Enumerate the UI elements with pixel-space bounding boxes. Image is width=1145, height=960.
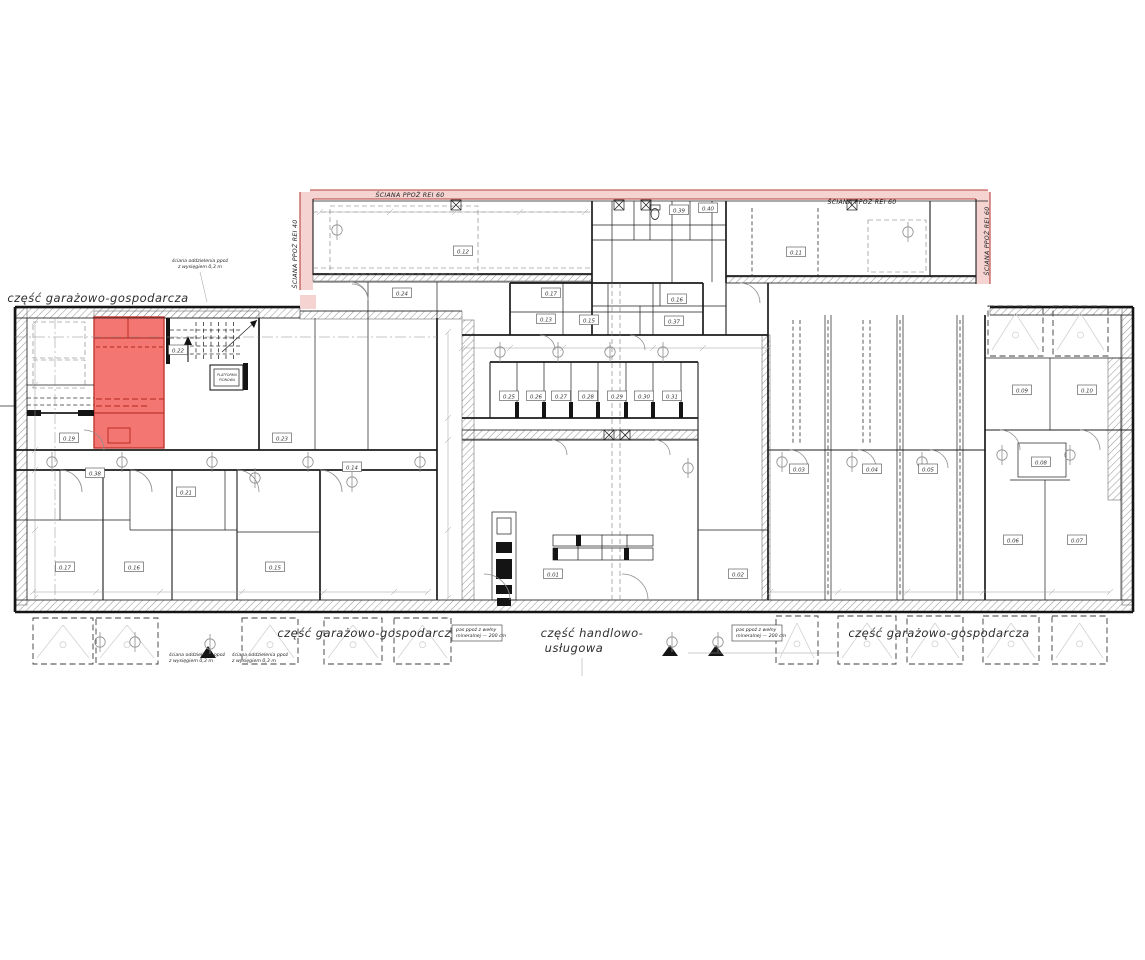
room-label-0.01: 0.01	[544, 569, 563, 579]
zone-garage-top-left-label: część garażowo-gospodarcza	[7, 291, 188, 305]
zone-garage-bottom-left-label: część garażowo-gospodarcza	[277, 626, 458, 640]
room-label-0.03: 0.03	[790, 464, 809, 474]
svg-text:0.16: 0.16	[671, 297, 684, 303]
svg-text:0.31: 0.31	[666, 394, 678, 400]
room-label-0.11: 0.11	[787, 247, 806, 257]
svg-text:0.22: 0.22	[172, 348, 185, 354]
room-label-0.13: 0.13	[537, 314, 556, 324]
svg-text:0.09: 0.09	[1016, 388, 1029, 394]
svg-text:0.15: 0.15	[269, 565, 282, 571]
room-label-0.15: 0.15	[580, 315, 599, 325]
svg-text:0.28: 0.28	[582, 394, 595, 400]
micro-labels: PLATFORMAPIONOWA	[217, 373, 237, 382]
svg-text:0.21: 0.21	[180, 490, 192, 496]
svg-text:0.07: 0.07	[1071, 538, 1084, 544]
svg-text:0.10: 0.10	[1081, 388, 1094, 394]
room-label-0.37: 0.37	[665, 316, 684, 326]
room-label-0.06: 0.06	[1004, 535, 1023, 545]
room-label-0.17: 0.17	[542, 288, 561, 298]
floorplan-drawing: część garażowo-gospodarczaczęść garażowo…	[0, 0, 1145, 960]
svg-text:0.37: 0.37	[668, 319, 681, 325]
svg-text:0.25: 0.25	[503, 394, 516, 400]
note-mineral-wool-left-line-1: pas ppoż z wełny	[455, 627, 497, 633]
svg-text:0.13: 0.13	[540, 317, 553, 323]
svg-text:0.17: 0.17	[545, 291, 558, 297]
room-label-0.30: 0.30	[635, 391, 654, 401]
room-label-0.07: 0.07	[1068, 535, 1087, 545]
note-mineral-wool-right: pas ppoż z wełnymineralnej — 200 cm	[732, 625, 787, 641]
svg-text:0.17: 0.17	[59, 565, 72, 571]
svg-text:0.11: 0.11	[790, 250, 802, 256]
svg-text:0.14: 0.14	[346, 465, 359, 471]
svg-text:0.04: 0.04	[866, 467, 879, 473]
note-separation-wall-bottom-1-line-1: ściana oddzielenia ppoż	[169, 651, 226, 658]
svg-text:0.24: 0.24	[396, 291, 409, 297]
svg-text:0.12: 0.12	[457, 249, 470, 255]
svg-text:0.06: 0.06	[1007, 538, 1020, 544]
svg-text:0.30: 0.30	[638, 394, 651, 400]
svg-text:0.03: 0.03	[793, 467, 806, 473]
platform-label-1: PLATFORMA	[217, 373, 237, 377]
room-label-0.09: 0.09	[1013, 385, 1032, 395]
note-separation-wall-top: ściana oddzielenia ppożz wysięgiem 0,3 m	[172, 257, 229, 270]
svg-text:0.39: 0.39	[673, 208, 686, 214]
room-label-0.40: 0.40	[699, 203, 718, 213]
firewall-top-right: ŚCIANA PPOŻ REI 60	[828, 197, 897, 206]
note-separation-wall-top-line-1: ściana oddzielenia ppoż	[172, 257, 229, 264]
room-label-0.14: 0.14	[343, 462, 362, 472]
note-separation-wall-bottom-2-line-2: z wysięgiem 0,3 m	[231, 658, 276, 664]
platform-label-2: PIONOWA	[219, 378, 236, 382]
room-label-0.22: 0.22	[169, 345, 188, 355]
room-label-0.27: 0.27	[552, 391, 571, 401]
svg-text:0.38: 0.38	[89, 471, 102, 477]
room-label-0.21: 0.21	[177, 487, 196, 497]
room-label-0.17: 0.17	[56, 562, 75, 572]
svg-text:0.27: 0.27	[555, 394, 568, 400]
note-separation-wall-bottom-1-line-2: z wysięgiem 0,3 m	[168, 658, 213, 664]
zone-retail-line1-label: część handlowo-	[541, 626, 644, 640]
room-label-0.12: 0.12	[454, 246, 473, 256]
svg-text:0.15: 0.15	[583, 318, 596, 324]
room-label-0.15: 0.15	[266, 562, 285, 572]
svg-text:0.40: 0.40	[702, 206, 715, 212]
svg-text:0.08: 0.08	[1035, 460, 1048, 466]
svg-text:0.29: 0.29	[611, 394, 624, 400]
zone-garage-bottom-right-label: część garażowo-gospodarcza	[848, 626, 1029, 640]
note-separation-wall-bottom-2-line-1: ściana oddzielenia ppoż	[232, 651, 289, 658]
room-label-0.39: 0.39	[670, 205, 689, 215]
floorplan-page: część garażowo-gospodarczaczęść garażowo…	[0, 0, 1145, 960]
room-label-0.38: 0.38	[86, 468, 105, 478]
room-label-0.28: 0.28	[579, 391, 598, 401]
svg-text:0.26: 0.26	[530, 394, 543, 400]
room-label-0.08: 0.08	[1032, 457, 1051, 467]
room-label-0.26: 0.26	[527, 391, 546, 401]
room-label-0.23: 0.23	[273, 433, 292, 443]
svg-text:0.02: 0.02	[732, 572, 745, 578]
svg-text:0.05: 0.05	[922, 467, 935, 473]
firewall-right-vertical: ŚCIANA PPOŻ REI 60	[982, 207, 991, 276]
room-label-0.10: 0.10	[1078, 385, 1097, 395]
firewall-left-vertical: ŚCIANA PPOŻ REI 40	[290, 220, 299, 289]
room-label-0.04: 0.04	[863, 464, 882, 474]
note-mineral-wool-right-line-2: mineralnej — 200 cm	[736, 633, 787, 639]
room-label-0.31: 0.31	[663, 391, 682, 401]
room-label-0.02: 0.02	[729, 569, 748, 579]
firewall-top-left: ŚCIANA PPOŻ REI 60	[376, 190, 445, 199]
room-label-0.24: 0.24	[393, 288, 412, 298]
zone-retail-line2-label: usługowa	[545, 641, 604, 655]
highlighted-room[interactable]	[94, 317, 164, 448]
note-mineral-wool-left-line-2: mineralnej — 200 cm	[456, 633, 507, 639]
room-label-0.16: 0.16	[668, 294, 687, 304]
svg-text:0.23: 0.23	[276, 436, 289, 442]
note-mineral-wool-left: pas ppoż z wełnymineralnej — 200 cm	[452, 625, 507, 641]
note-mineral-wool-right-line-1: pas ppoż z wełny	[735, 627, 777, 633]
room-label-0.29: 0.29	[608, 391, 627, 401]
note-separation-wall-top-line-2: z wysięgiem 0,3 m	[177, 264, 222, 270]
room-label-0.25: 0.25	[500, 391, 519, 401]
room-label-0.19: 0.19	[60, 433, 79, 443]
svg-text:0.01: 0.01	[547, 572, 559, 578]
svg-text:0.16: 0.16	[128, 565, 141, 571]
room-label-0.05: 0.05	[919, 464, 938, 474]
room-label-0.16: 0.16	[125, 562, 144, 572]
svg-text:0.19: 0.19	[63, 436, 76, 442]
